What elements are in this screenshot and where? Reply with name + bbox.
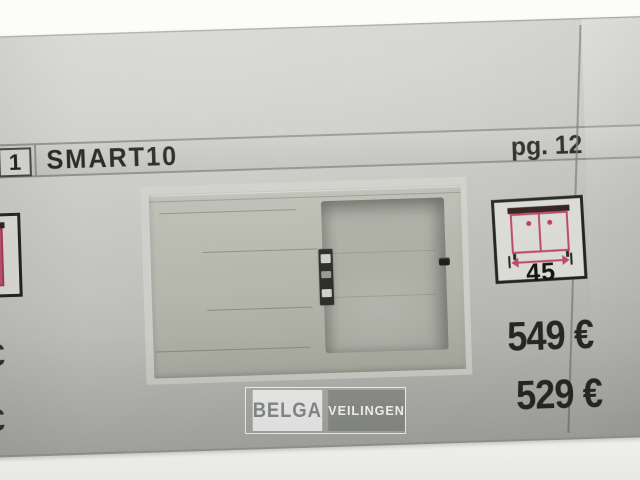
page-number: pg. 12 [487, 131, 583, 160]
drainboard-groove [156, 347, 311, 353]
cabinet-door-divider [538, 214, 542, 250]
sink-image [149, 185, 467, 379]
cabinet-width-value: 45 [497, 256, 585, 290]
header-band: 1 SMART10 pg. 12 [0, 123, 640, 179]
drain-label-sticker [318, 249, 334, 305]
overflow-hole [439, 257, 450, 265]
cabinet-body [510, 211, 570, 254]
door-handle-icon [526, 221, 531, 226]
basin-light-reflection [321, 197, 449, 353]
sticker-band [322, 289, 332, 297]
product-index-cell: 1 [0, 147, 32, 177]
cabinet-size-icon-partial [0, 213, 23, 300]
watermark-badge: BELGA VEILINGEN [245, 387, 406, 434]
cabinet-size-icon: 45 [491, 195, 588, 284]
product-title: SMART10 [46, 143, 178, 174]
watermark-suffix: VEILINGEN [328, 390, 405, 431]
drainboard-groove [202, 248, 317, 253]
cabinet-body [0, 228, 4, 288]
sink-basin [321, 197, 449, 353]
drainboard-groove [207, 307, 312, 311]
euro-partial-bottom: € [0, 402, 5, 439]
product-photo [140, 177, 472, 385]
product-index: 1 [8, 149, 21, 175]
price-secondary: 529 € [515, 370, 602, 420]
sink-rim-highlight [149, 186, 461, 197]
sticker-band [321, 254, 331, 263]
door-handle-icon [547, 220, 552, 225]
drainboard-groove [159, 209, 296, 214]
euro-partial-top: € [0, 337, 5, 374]
band-divider [34, 145, 37, 175]
sticker-band [321, 271, 331, 278]
price-primary: 549 € [507, 311, 594, 361]
watermark-brand: BELGA [253, 390, 322, 431]
